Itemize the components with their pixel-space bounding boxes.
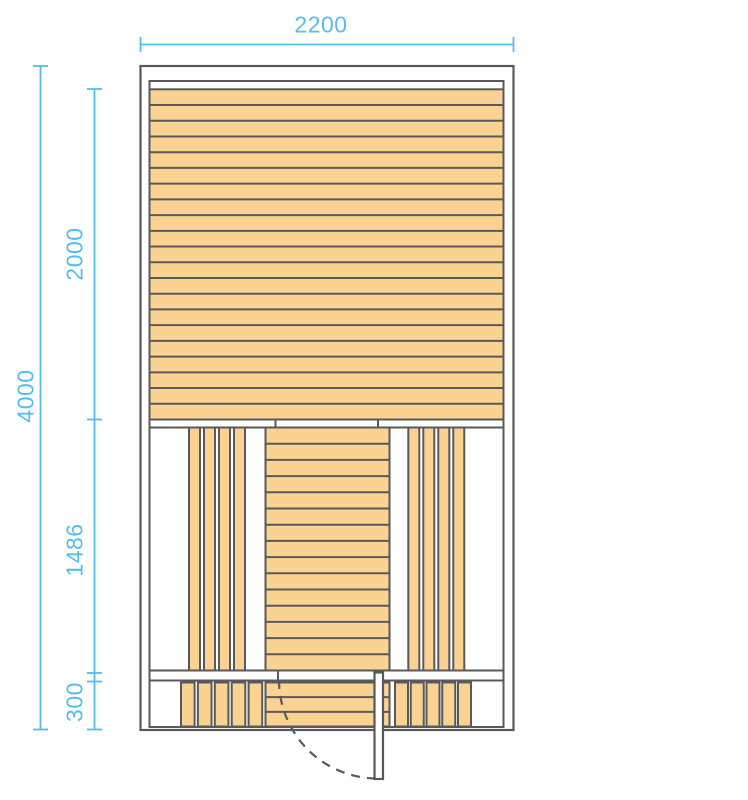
lower-section-planks [181, 683, 471, 727]
upper-section-planks [150, 89, 504, 419]
dimension-label-total-width: 2200 [294, 12, 347, 39]
dimension-label-lower-height: 300 [62, 682, 89, 722]
lower-rail [150, 671, 504, 681]
floor-plan-drawing: 2200 4000 2000 1486 300 [0, 0, 748, 800]
upper-rail [150, 420, 504, 428]
dimension-label-total-height: 4000 [13, 369, 40, 422]
middle-section-planks [189, 428, 464, 671]
plan-svg [0, 0, 748, 800]
dimension-label-middle-height: 1486 [62, 523, 89, 576]
dimension-label-upper-height: 2000 [62, 227, 89, 280]
